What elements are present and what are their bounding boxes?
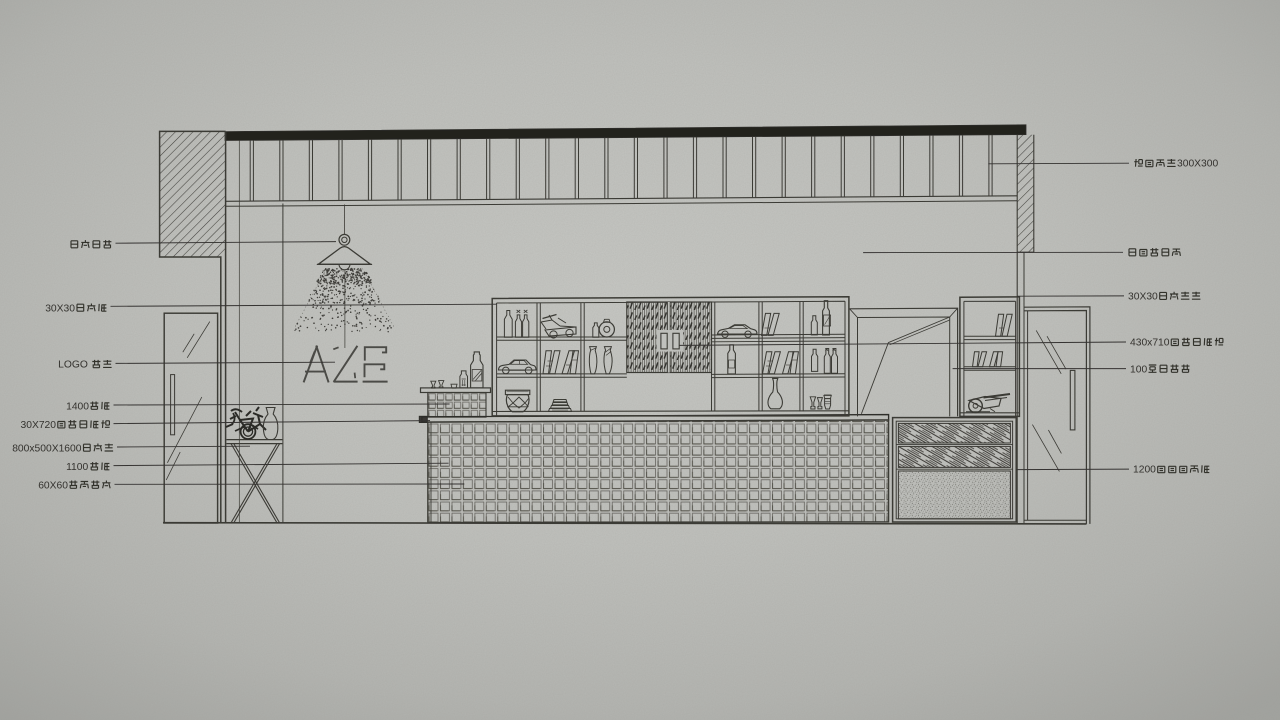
svg-text:1200: 1200 xyxy=(1133,465,1156,476)
svg-text:1400: 1400 xyxy=(66,401,89,412)
svg-text:1100: 1100 xyxy=(66,462,88,473)
svg-text:30X30: 30X30 xyxy=(45,303,75,314)
svg-text:LOGO: LOGO xyxy=(58,360,88,371)
svg-text:60X60: 60X60 xyxy=(38,480,68,491)
svg-text:300X300: 300X300 xyxy=(1177,159,1219,170)
svg-text:430x710: 430x710 xyxy=(1130,338,1170,349)
svg-text:800x500X1600: 800x500X1600 xyxy=(12,443,82,454)
svg-text:100: 100 xyxy=(1130,364,1147,375)
svg-text:30X30: 30X30 xyxy=(1128,292,1158,303)
svg-text:30X720: 30X720 xyxy=(21,420,57,431)
